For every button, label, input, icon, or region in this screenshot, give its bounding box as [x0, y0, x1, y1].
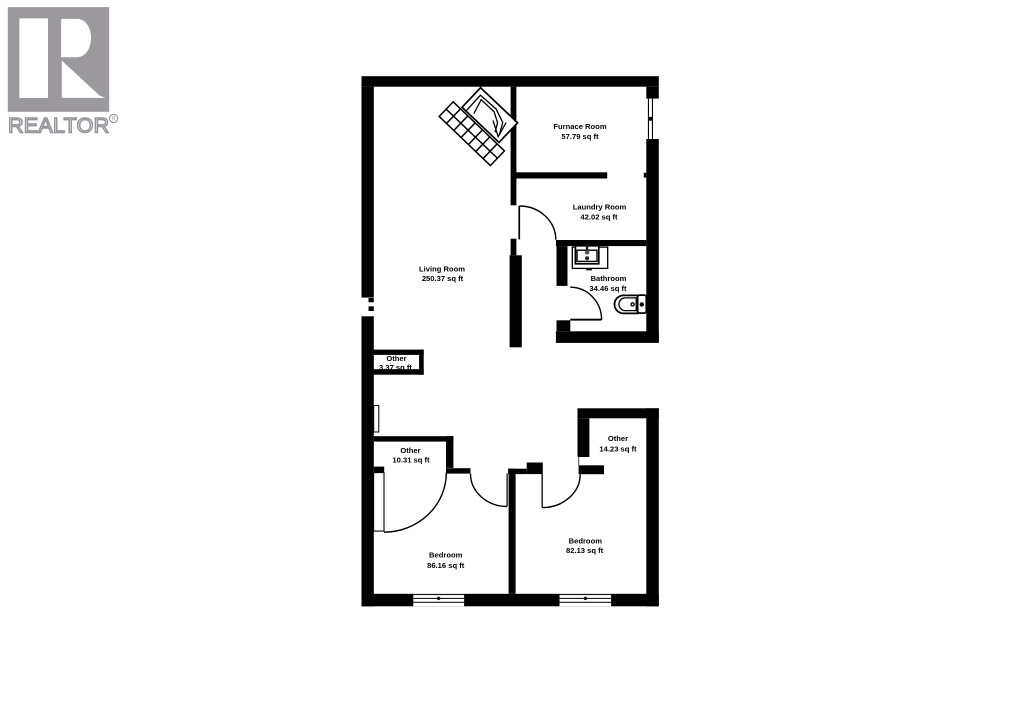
- svg-text:R: R: [112, 117, 116, 123]
- svg-text:42.02 sq ft: 42.02 sq ft: [580, 213, 618, 222]
- svg-text:82.13 sq ft: 82.13 sq ft: [566, 546, 604, 555]
- svg-text:3.37 sq ft: 3.37 sq ft: [379, 363, 412, 372]
- svg-text:34.46 sq ft: 34.46 sq ft: [589, 284, 627, 293]
- svg-text:Bathroom: Bathroom: [591, 274, 627, 283]
- svg-text:Living Room: Living Room: [419, 265, 465, 274]
- svg-text:Laundry Room: Laundry Room: [573, 203, 627, 212]
- svg-text:86.16 sq ft: 86.16 sq ft: [427, 561, 465, 570]
- svg-text:Other: Other: [608, 434, 628, 443]
- svg-text:14.23 sq ft: 14.23 sq ft: [599, 445, 637, 454]
- svg-text:10.31 sq ft: 10.31 sq ft: [392, 455, 430, 464]
- svg-text:Furnace Room: Furnace Room: [553, 122, 606, 131]
- svg-text:REALTOR: REALTOR: [8, 112, 109, 137]
- svg-text:57.79 sq ft: 57.79 sq ft: [561, 132, 599, 141]
- svg-text:Bedroom: Bedroom: [569, 536, 603, 545]
- svg-text:Bedroom: Bedroom: [429, 551, 463, 560]
- svg-text:250.37 sq ft: 250.37 sq ft: [422, 274, 464, 283]
- svg-text:Other: Other: [400, 446, 420, 455]
